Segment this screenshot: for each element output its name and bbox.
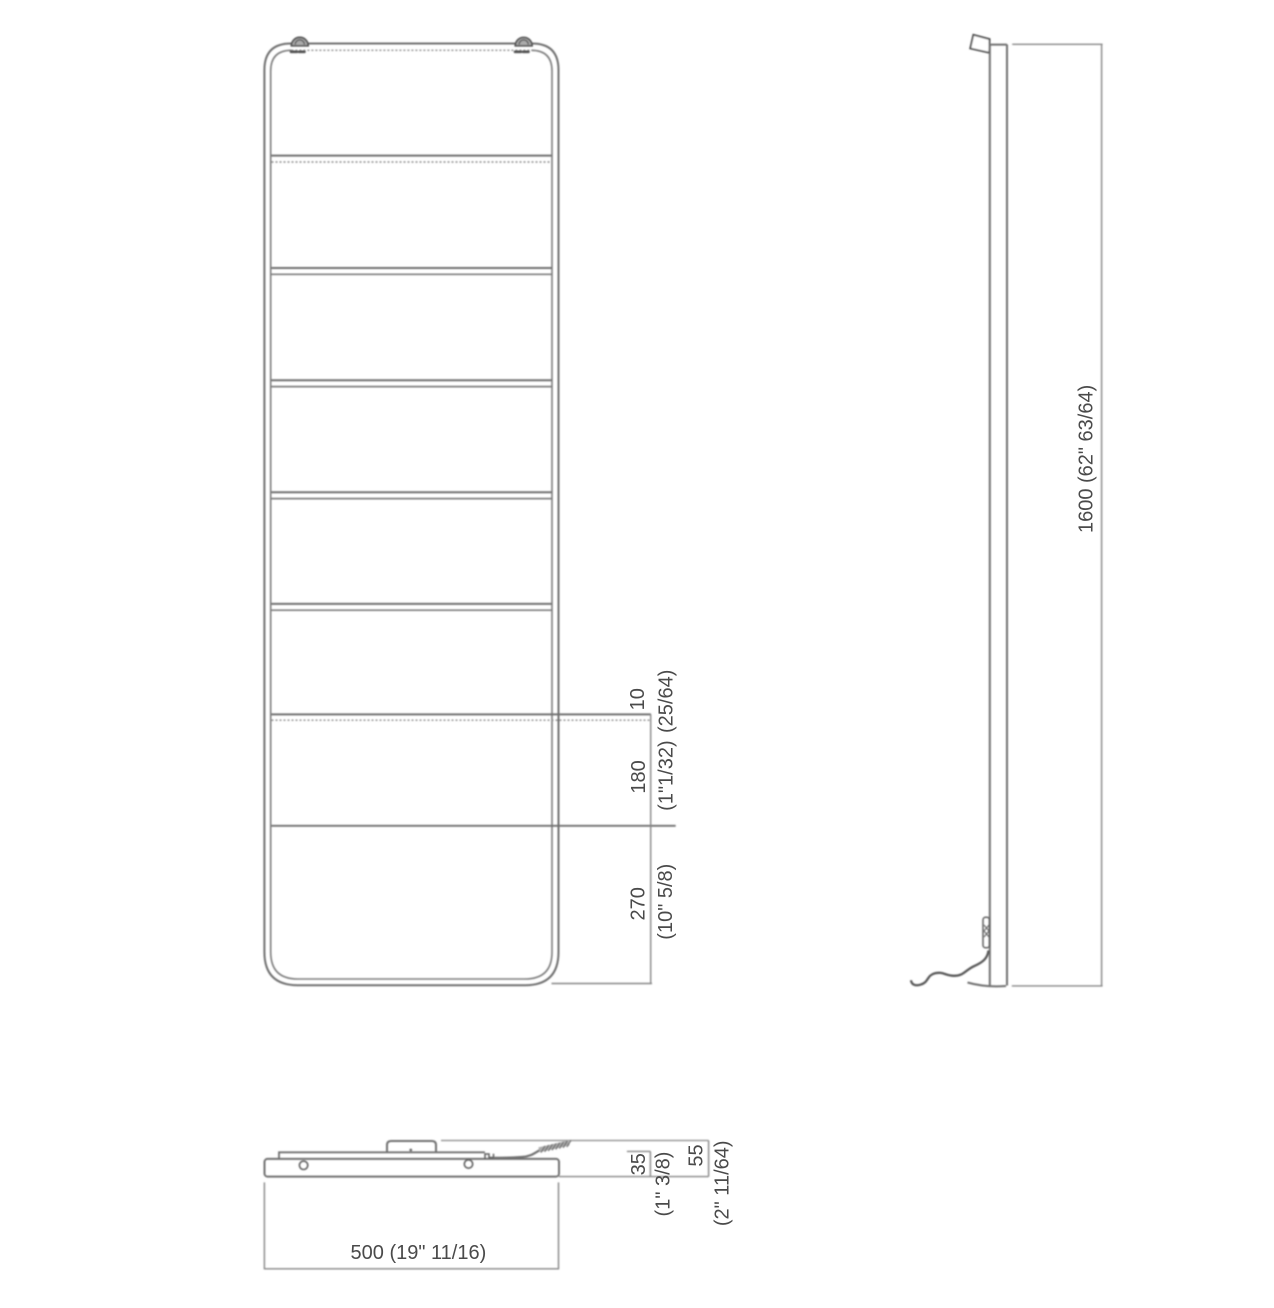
svg-text:(10" 5/8): (10" 5/8) <box>655 864 677 940</box>
svg-text:270: 270 <box>628 887 650 920</box>
svg-text:(25/64): (25/64) <box>656 670 678 733</box>
svg-text:(2" 11/64): (2" 11/64) <box>711 1140 733 1226</box>
svg-text:35: 35 <box>628 1153 650 1175</box>
svg-text:500 (19" 11/16): 500 (19" 11/16) <box>351 1242 487 1264</box>
svg-text:1600 (62" 63/64): 1600 (62" 63/64) <box>1076 385 1098 533</box>
svg-text:180: 180 <box>628 760 650 793</box>
svg-text:(1"1/32): (1"1/32) <box>656 740 678 810</box>
svg-text:(1" 3/8): (1" 3/8) <box>653 1152 675 1217</box>
svg-text:10: 10 <box>627 688 649 710</box>
svg-text:55: 55 <box>685 1144 707 1166</box>
